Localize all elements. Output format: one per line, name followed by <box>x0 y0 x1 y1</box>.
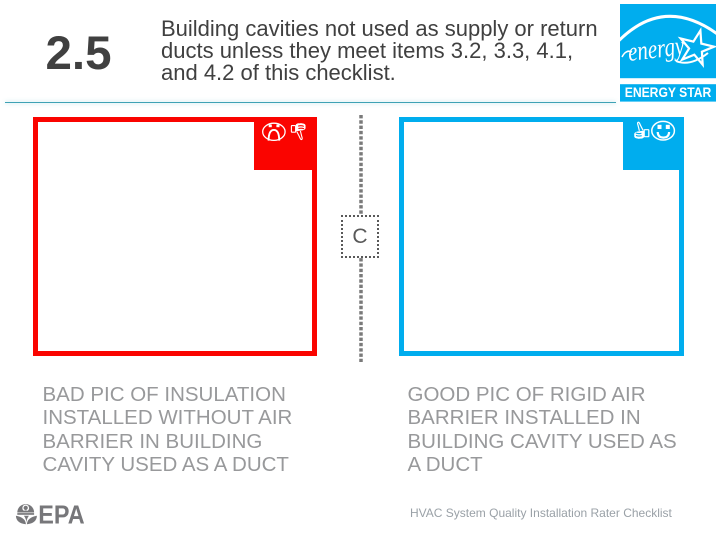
svg-text:ENERGY STAR: ENERGY STAR <box>625 84 712 100</box>
svg-text:EPA: EPA <box>38 503 84 527</box>
